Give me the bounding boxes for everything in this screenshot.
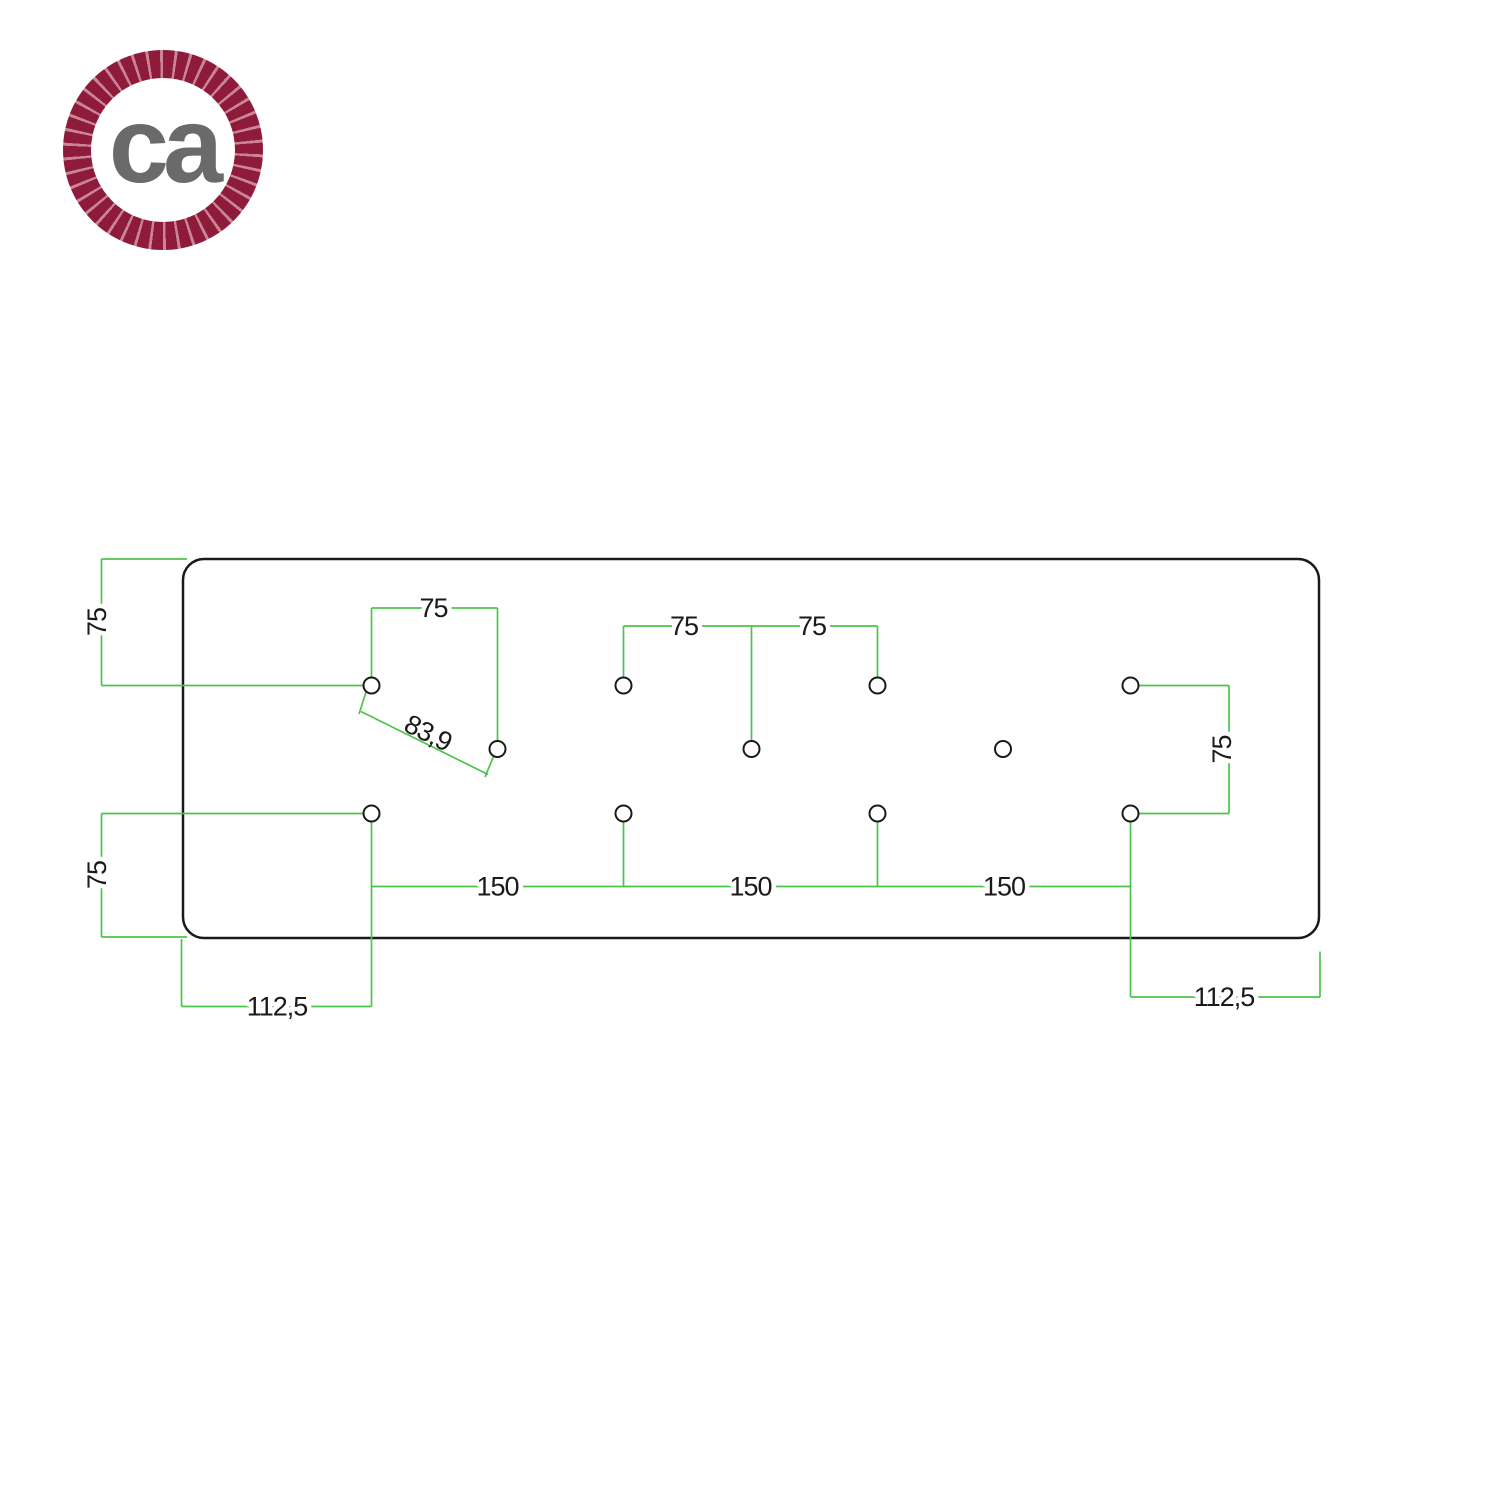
cable-hole bbox=[364, 678, 380, 694]
left-bottom-75-dimension bbox=[102, 814, 372, 938]
cable-hole bbox=[870, 806, 886, 822]
dimension-drawing: 75 75 75 83,9 75 75 75 150 150 150 112,5… bbox=[0, 0, 1500, 1500]
dimension-label: 75 bbox=[82, 608, 112, 636]
dimension-label: 75 bbox=[1207, 735, 1237, 763]
cable-hole bbox=[995, 741, 1011, 757]
cable-hole bbox=[364, 806, 380, 822]
cable-hole bbox=[616, 806, 632, 822]
cable-hole bbox=[1123, 806, 1139, 822]
dimension-tick bbox=[485, 757, 494, 778]
cable-hole bbox=[616, 678, 632, 694]
dimension-label: 150 bbox=[476, 872, 518, 902]
product-dimension-image: ca bbox=[0, 0, 1500, 1500]
dimension-label: 150 bbox=[983, 872, 1025, 902]
cable-hole bbox=[1123, 678, 1139, 694]
cable-hole bbox=[744, 741, 760, 757]
cable-hole bbox=[490, 741, 506, 757]
offset-112-5-dimensions bbox=[182, 939, 1321, 1007]
dimension-label: 112,5 bbox=[247, 992, 308, 1022]
left-top-75-dimension bbox=[102, 559, 372, 686]
top-center-75-dimensions bbox=[624, 626, 878, 749]
dimension-label: 83,9 bbox=[400, 709, 457, 758]
dimension-label: 112,5 bbox=[1194, 982, 1255, 1012]
dimension-label: 75 bbox=[670, 611, 698, 641]
dimension-label: 75 bbox=[798, 611, 826, 641]
dimension-label: 75 bbox=[419, 593, 447, 623]
dimension-tick bbox=[359, 692, 366, 714]
dimension-label: 75 bbox=[82, 861, 112, 889]
cable-hole bbox=[870, 678, 886, 694]
dimension-label: 150 bbox=[729, 872, 771, 902]
bottom-150-dimensions bbox=[372, 814, 1131, 1007]
